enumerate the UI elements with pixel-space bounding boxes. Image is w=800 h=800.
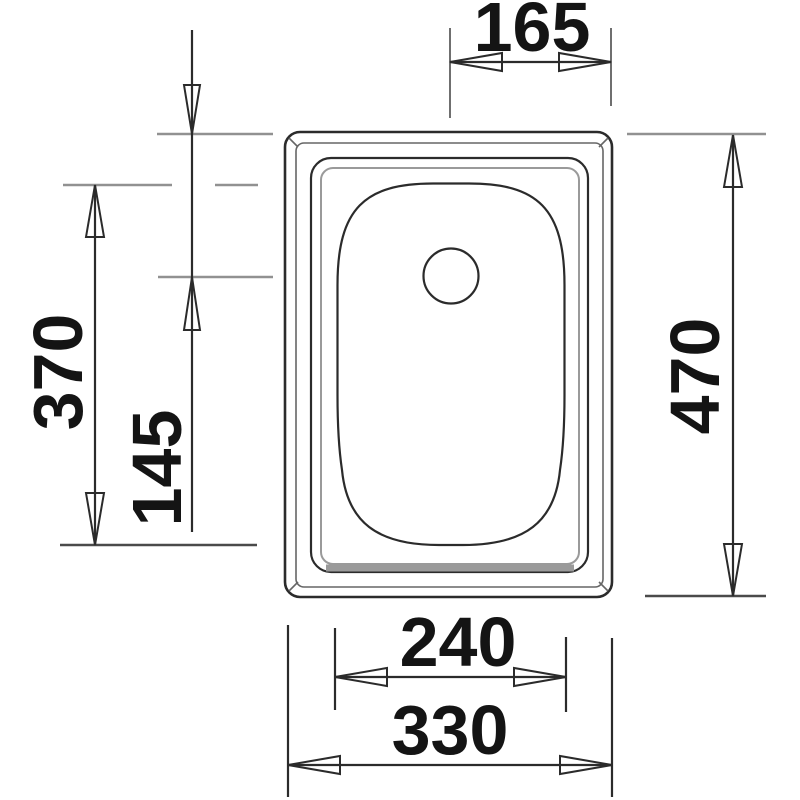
- dimension-label: 240: [400, 603, 517, 681]
- drain-circle: [424, 249, 479, 304]
- sink-rim-edge: [311, 158, 588, 572]
- bevel-corner-br: [599, 582, 608, 591]
- sink-drawing: [285, 132, 612, 597]
- bevel-corner-tr: [599, 138, 608, 147]
- bevel-corner-bl: [289, 582, 298, 591]
- dim-top-165: 165: [450, 0, 611, 118]
- sink-dimension-diagram: 165 370 145 470 240: [0, 0, 800, 800]
- technical-drawing-canvas: 165 370 145 470 240: [0, 0, 800, 800]
- dimension-label: 330: [392, 691, 509, 769]
- dimension-label: 370: [19, 314, 97, 431]
- sink-outer-bevel: [296, 143, 603, 587]
- sink-bowl-outline: [338, 184, 565, 546]
- dimension-label: 145: [118, 410, 196, 527]
- sink-rim-inner-line: [321, 168, 579, 564]
- dim-left-145: 145: [118, 30, 273, 532]
- dimension-label: 165: [474, 0, 591, 66]
- dimension-label: 470: [656, 318, 734, 435]
- dim-right-470: 470: [627, 134, 766, 596]
- bevel-corner-tl: [289, 138, 298, 147]
- sink-outer-edge: [285, 132, 612, 597]
